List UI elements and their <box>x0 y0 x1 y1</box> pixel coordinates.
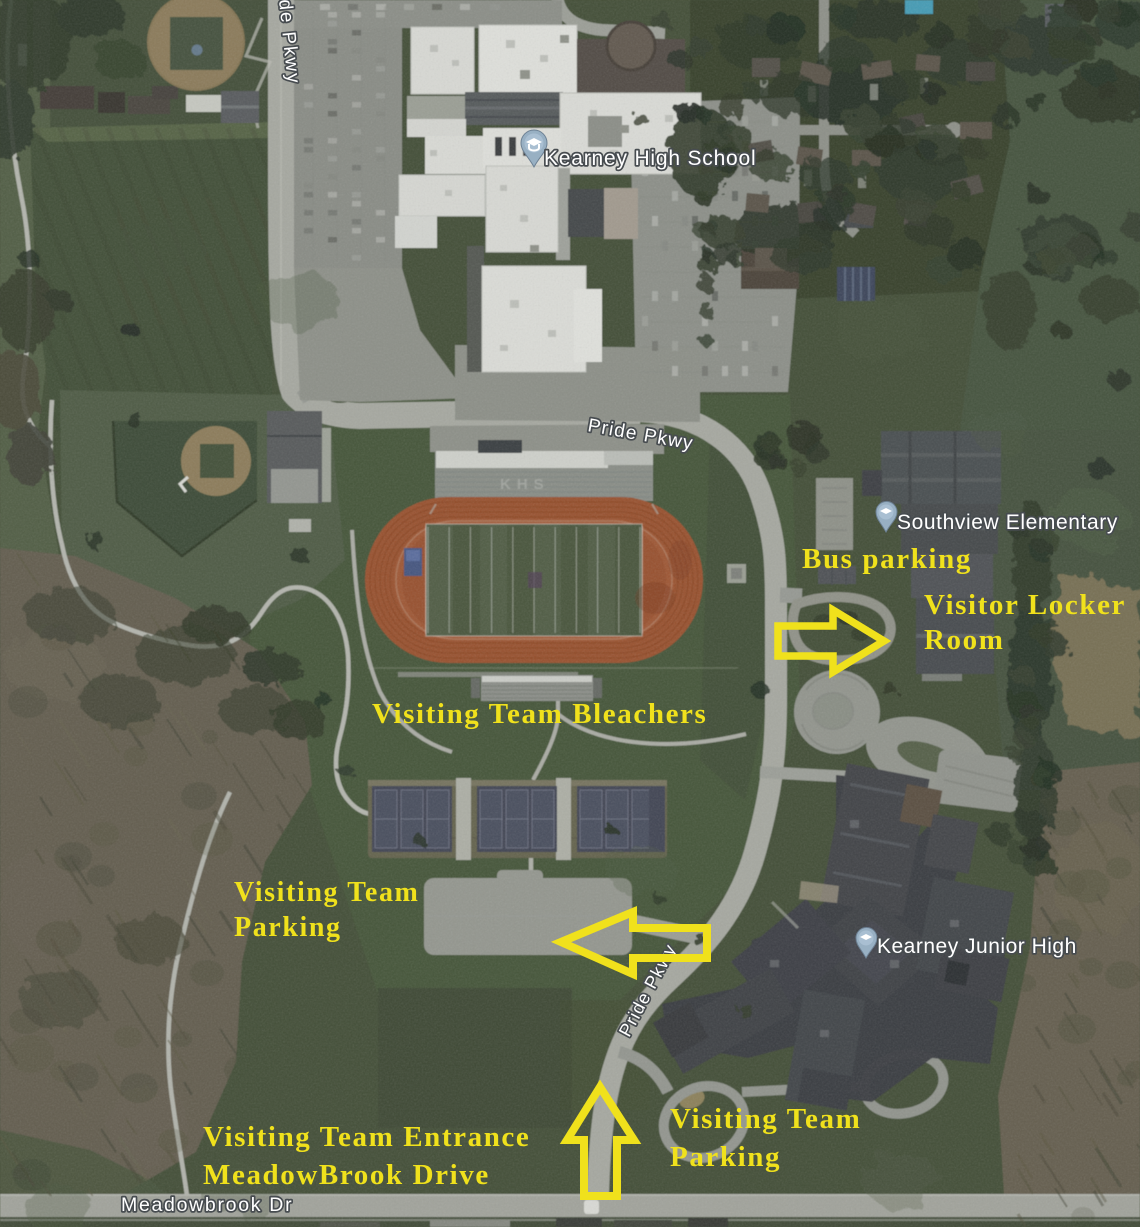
svg-text:MeadowBrook Drive: MeadowBrook Drive <box>203 1159 490 1191</box>
svg-text:Meadowbrook Dr: Meadowbrook Dr <box>121 1194 293 1216</box>
svg-text:Room: Room <box>924 624 1005 656</box>
svg-text:Bus parking: Bus parking <box>802 543 972 575</box>
svg-text:Visiting Team: Visiting Team <box>234 877 419 908</box>
svg-text:Parking: Parking <box>234 912 342 943</box>
svg-text:Southview Elementary: Southview Elementary <box>897 511 1118 534</box>
svg-text:Kearney High School: Kearney High School <box>544 147 757 170</box>
svg-text:Visiting Team Bleachers: Visiting Team Bleachers <box>372 698 707 730</box>
svg-text:Kearney Junior High: Kearney Junior High <box>877 935 1077 958</box>
svg-text:Visitor Locker: Visitor Locker <box>924 589 1126 621</box>
svg-text:Visiting Team Entrance: Visiting Team Entrance <box>203 1121 530 1153</box>
svg-text:Visiting Team: Visiting Team <box>670 1103 861 1135</box>
svg-text:Parking: Parking <box>670 1141 781 1173</box>
